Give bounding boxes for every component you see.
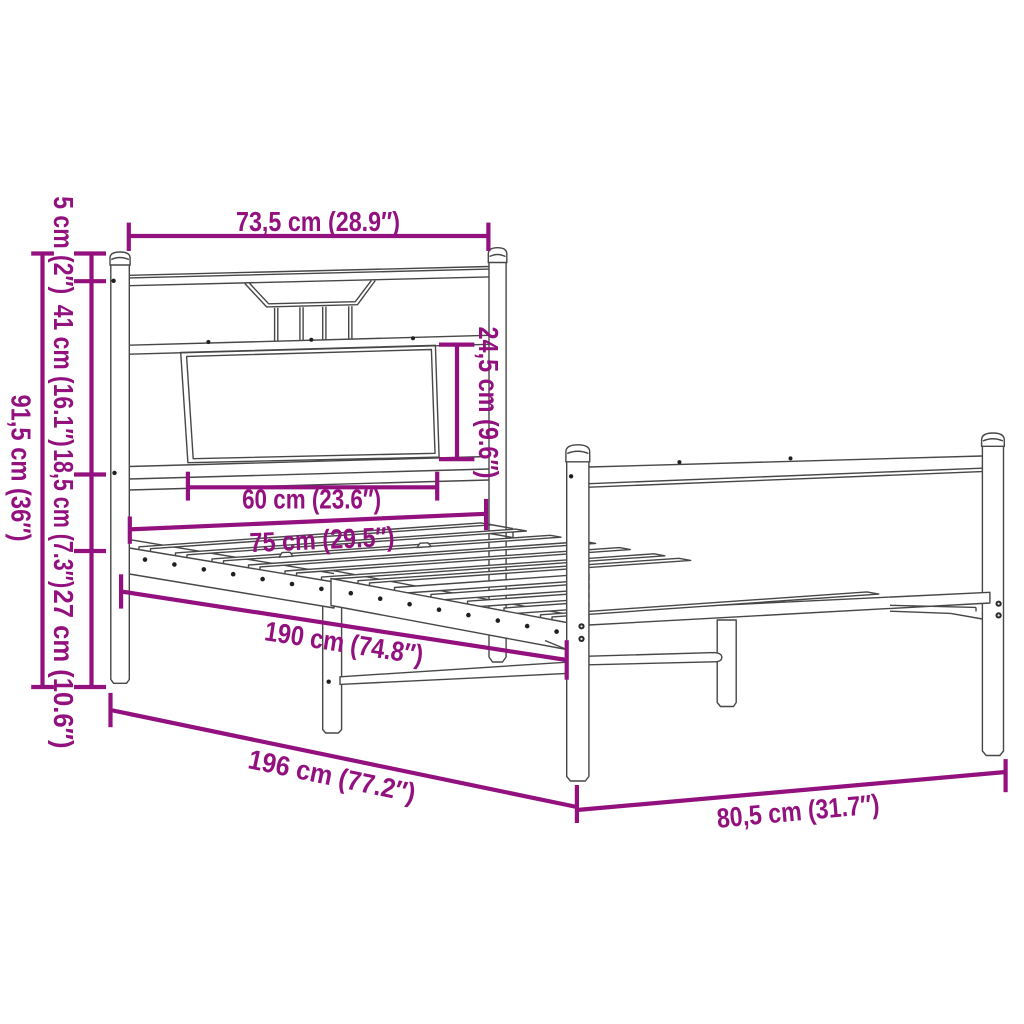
svg-text:27 cm (10.6″): 27 cm (10.6″) [48, 590, 79, 749]
svg-text:73,5 cm (28.9″): 73,5 cm (28.9″) [236, 206, 400, 237]
svg-text:24,5 cm (9.6″): 24,5 cm (9.6″) [473, 327, 504, 479]
svg-text:60 cm (23.6″): 60 cm (23.6″) [242, 483, 381, 514]
svg-text:18,5 cm (7.3″): 18,5 cm (7.3″) [48, 449, 79, 588]
svg-text:41 cm (16.1″): 41 cm (16.1″) [48, 305, 79, 447]
svg-text:75 cm (29.5″): 75 cm (29.5″) [249, 521, 395, 558]
svg-text:91,5 cm (36″): 91,5 cm (36″) [6, 395, 37, 542]
svg-text:5 cm (2″): 5 cm (2″) [48, 196, 79, 294]
